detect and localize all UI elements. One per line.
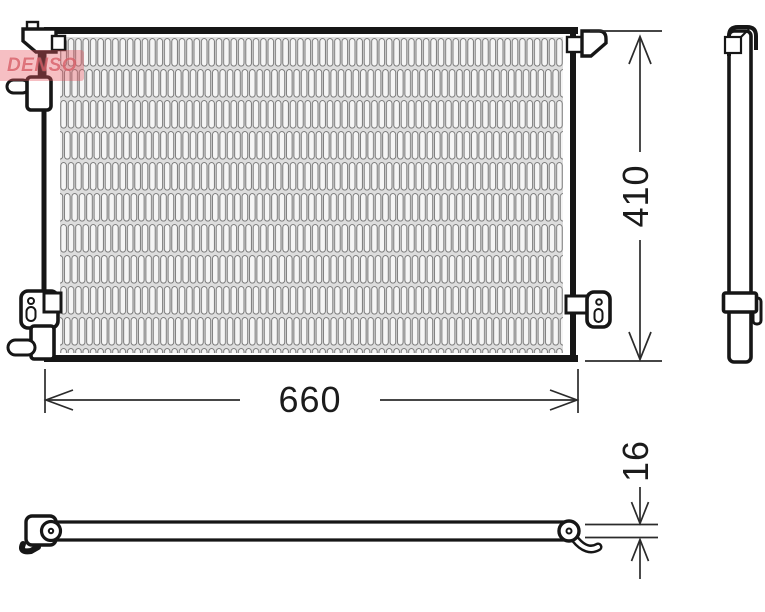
denso-logo-watermark: DENSO — [0, 50, 84, 81]
bottom-left-bracket — [8, 291, 61, 359]
bottom-view — [22, 516, 598, 551]
dimension-height-label: 410 — [615, 136, 657, 256]
top-header-bar — [44, 27, 578, 34]
technical-drawing-canvas: 660 410 16 DENSO — [0, 0, 765, 612]
left-pipe-fitting — [7, 77, 51, 110]
side-view — [724, 27, 762, 362]
core-fins — [60, 37, 563, 353]
dimension-width-label: 660 — [250, 379, 370, 421]
dimension-thickness-label: 16 — [615, 401, 657, 521]
front-view — [7, 22, 610, 362]
bottom-view-left-fitting — [22, 516, 61, 551]
bottom-header-bar — [44, 355, 578, 362]
